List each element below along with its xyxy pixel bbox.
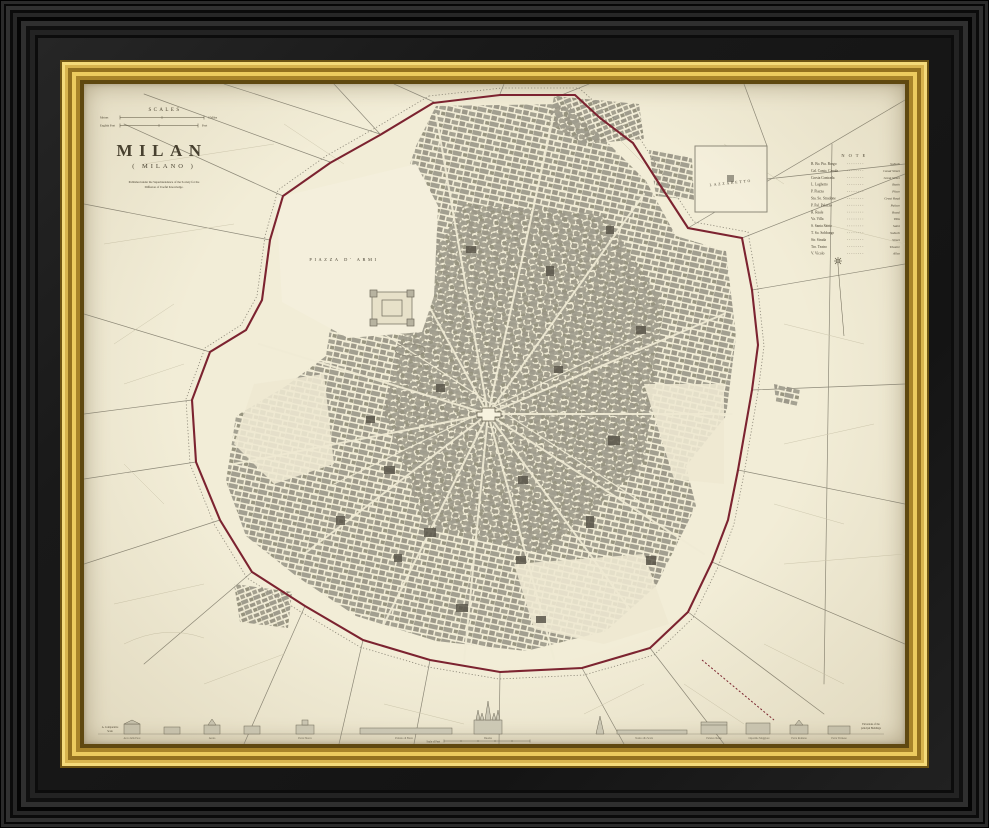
elevation-caption: Porta Nuova	[298, 737, 312, 740]
note-row: Str. Strada	[811, 238, 826, 242]
elevation-right-note: Elevations of the	[862, 723, 880, 726]
note-row: Palace	[890, 203, 901, 207]
note-legend: N O T E B. Bo. Pta. Borgo Suburb Cal. Ca…	[811, 153, 901, 256]
elevation-caption: Arena	[209, 737, 216, 740]
imprint-line-2: Diffusion of Useful Knowledge.	[145, 185, 184, 189]
note-row: S. Santa Santo	[811, 224, 832, 228]
note-row: Street	[892, 238, 901, 242]
duomo-elevation	[474, 701, 502, 734]
note-row: T. So. Sobborgo	[811, 231, 834, 235]
note-title: N O T E	[841, 153, 866, 158]
elevation-caption: Palazzo di Brera	[395, 737, 414, 740]
note-row: P. Pal. Palazzo	[811, 203, 832, 207]
note-row: Suburb	[890, 231, 900, 235]
scale-bar-2-label-left: English Feet	[100, 124, 115, 128]
note-row: Place	[891, 190, 900, 194]
scales-heading: SCALES	[148, 108, 181, 113]
note-row: Basin	[892, 183, 900, 187]
elevation-left-note: A. Comparative	[102, 726, 119, 729]
note-row: Corsia Contrada	[811, 176, 835, 180]
note-row: R. Reale	[811, 210, 824, 214]
note-row: Royal	[891, 210, 900, 214]
compass-star-icon	[834, 257, 844, 336]
note-row: Va. Villa	[811, 217, 824, 221]
elevation-caption: Porta Ticinese	[831, 737, 847, 740]
note-row: Villa	[894, 217, 901, 221]
elevation-caption: Duomo	[484, 737, 493, 740]
elevation-caption: Ospedale Maggiore	[748, 737, 770, 740]
scale-bars: SCALES Metres 3 Miles English Feet Feet	[100, 108, 218, 128]
city-wall-dashed-spur	[702, 660, 774, 720]
note-row: Saint	[893, 224, 901, 228]
note-row: Great Road	[884, 197, 900, 201]
elevation-right-note: principal Buildings	[861, 727, 881, 730]
meridian-line	[838, 265, 844, 336]
note-row: V. Vicolo	[811, 252, 825, 256]
note-row: Sta. So. Stradone	[811, 197, 836, 201]
elevation-left-note: Scale	[107, 730, 113, 733]
elevation-caption: Palazzo Reale	[706, 737, 722, 740]
note-row: B. Bo. Pta. Borgo	[811, 162, 837, 166]
elevation-caption: Teatro alla Scala	[635, 737, 654, 740]
note-row: Tro. Teatro	[811, 245, 827, 249]
note-row: Theatre	[890, 245, 901, 249]
piazza-darmi-area: PIAZZA D' ARMI	[276, 164, 438, 356]
note-row: Great Street	[884, 176, 901, 180]
note-row: Alley	[892, 252, 900, 256]
note-row: Suburb	[890, 162, 900, 166]
bottom-elevations: Arco della Pace Arena Porta Nuova Palazz…	[98, 701, 884, 744]
castello-fort	[370, 290, 414, 326]
elevation-caption: Porta Romana	[791, 737, 807, 740]
note-row: L. Laghetto	[811, 183, 828, 187]
framed-map-photo: PIAZZA D' ARMI LAZZARETTO SCALES	[0, 0, 989, 828]
piazza-darmi-label: PIAZZA D' ARMI	[309, 257, 378, 262]
map-title: MILAN	[116, 141, 207, 160]
lazzaretto-enclosure: LAZZARETTO	[695, 146, 767, 212]
imprint-line-1: Published under the Superintendence of t…	[129, 180, 200, 184]
scale-bar-1-label-left: Metres	[100, 116, 109, 120]
scale-bar-2-label-right: Feet	[202, 124, 207, 128]
elevation-scale-label: Scale of Feet	[426, 741, 440, 744]
note-row: Cal. Canto. Canale	[811, 169, 839, 173]
note-row: P. Piazza	[811, 190, 824, 194]
map-subtitle: ( MILANO )	[132, 163, 196, 170]
milan-map-engraving: PIAZZA D' ARMI LAZZARETTO SCALES	[84, 84, 905, 744]
scale-bar-1-label-right: 3 Miles	[208, 116, 218, 120]
note-row: Canal Street	[883, 169, 901, 173]
map-paper: PIAZZA D' ARMI LAZZARETTO SCALES	[84, 84, 905, 744]
elevation-caption: Arco della Pace	[123, 737, 141, 740]
